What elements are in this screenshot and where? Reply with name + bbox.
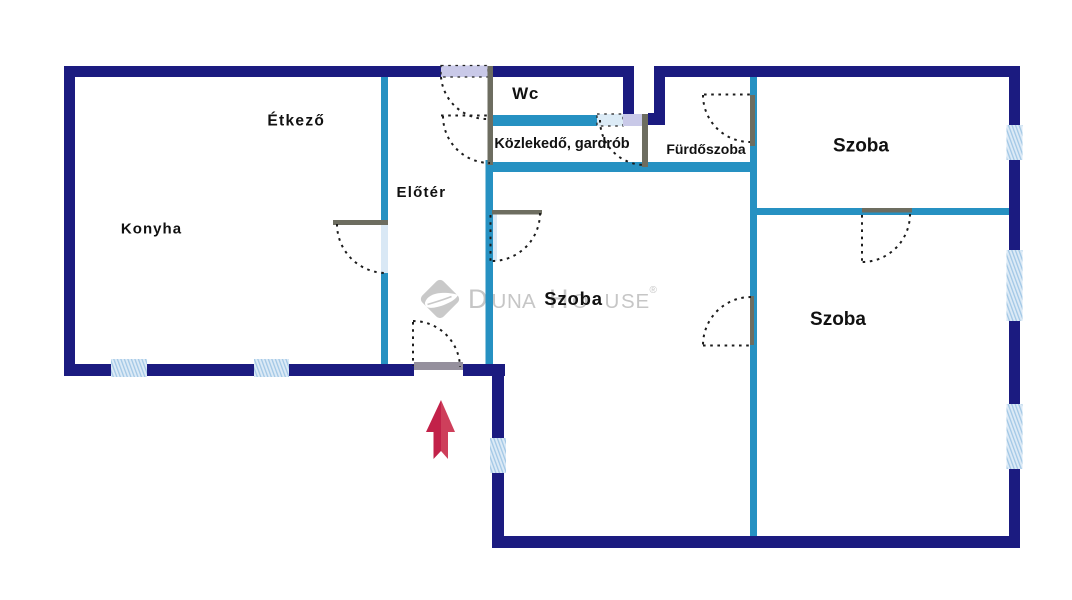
svg-text:Közlekedő, gardrób: Közlekedő, gardrób: [494, 136, 629, 152]
svg-text:®: ®: [650, 285, 658, 296]
svg-text:Előtér: Előtér: [397, 184, 447, 201]
svg-text:Wc: Wc: [512, 84, 539, 103]
svg-text:Fürdőszoba: Fürdőszoba: [666, 141, 746, 157]
svg-text:Konyha: Konyha: [121, 221, 182, 238]
svg-text:Szoba: Szoba: [833, 136, 889, 157]
svg-text:Szoba: Szoba: [544, 288, 603, 309]
svg-text:Étkező: Étkező: [267, 113, 325, 130]
svg-text:Szoba: Szoba: [810, 309, 866, 330]
